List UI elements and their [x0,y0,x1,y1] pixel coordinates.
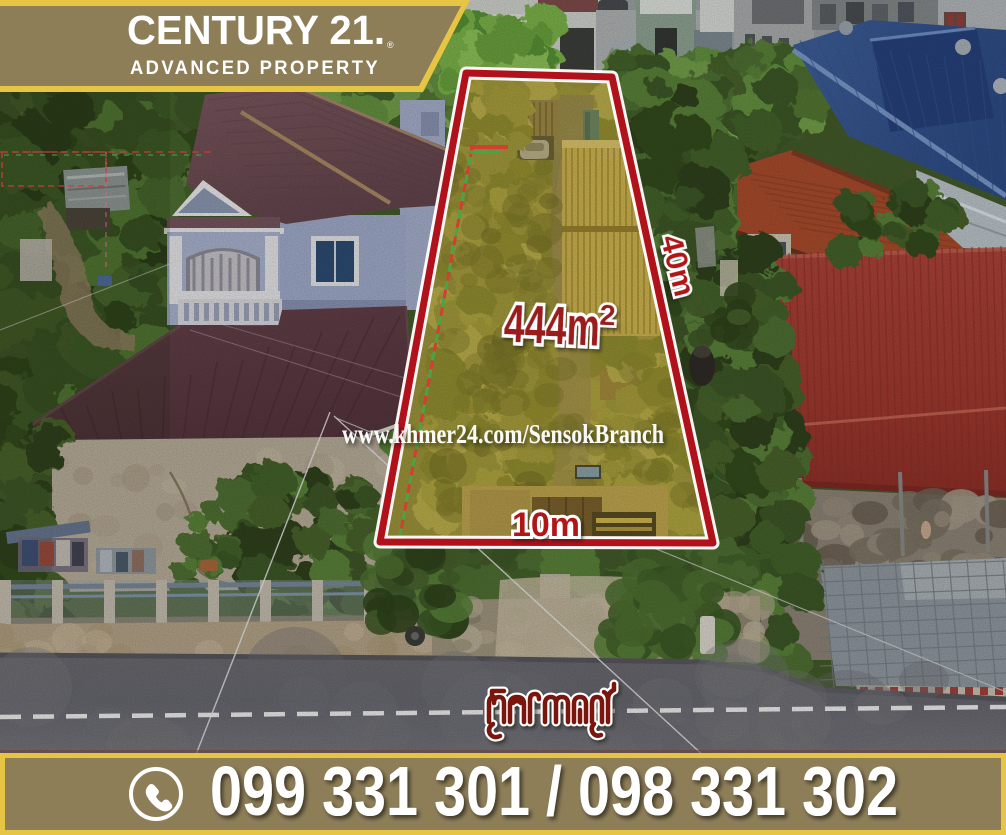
svg-text:444m: 444m [503,294,602,358]
svg-text:®: ® [387,40,394,50]
svg-text:CENTURY 21.: CENTURY 21. [127,7,385,53]
svg-text:10m: 10m [512,506,580,544]
svg-text:2: 2 [599,300,617,333]
svg-text:099 331 301 / 098 331 302: 099 331 301 / 098 331 302 [210,752,898,830]
svg-text:www.khmer24.com/SensokBranch: www.khmer24.com/SensokBranch [342,419,664,449]
svg-text:ADVANCED PROPERTY: ADVANCED PROPERTY [130,58,380,79]
